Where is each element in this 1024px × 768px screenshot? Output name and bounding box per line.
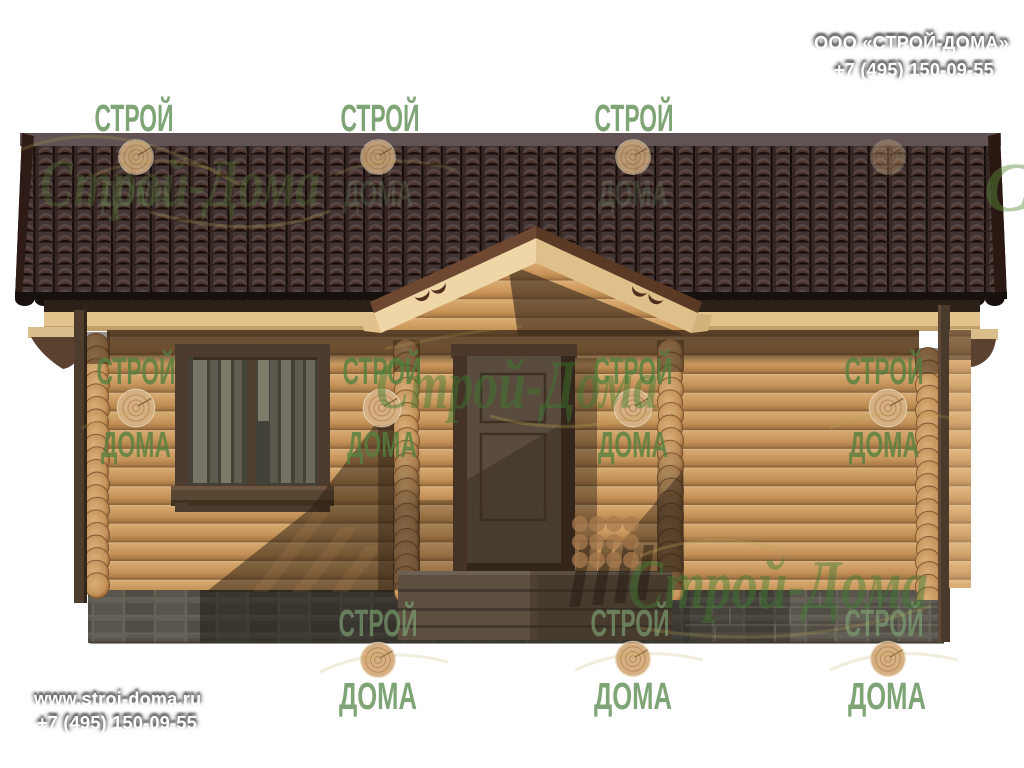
svg-text:ДОМА: ДОМА	[343, 173, 413, 214]
svg-text:СТРОЙ: СТРОЙ	[341, 95, 420, 140]
svg-text:ДОМА: ДОМА	[339, 676, 417, 718]
svg-text:СТРОЙ: СТРОЙ	[339, 600, 418, 645]
svg-text:ДОМА: ДОМА	[594, 676, 672, 718]
svg-text:ДОМА: ДОМА	[849, 424, 919, 465]
svg-text:Строй-Дома: Строй-Дома	[628, 547, 928, 624]
svg-text:СТРОЙ: СТРОЙ	[95, 95, 174, 140]
svg-text:СТРОЙ: СТРОЙ	[97, 348, 176, 393]
svg-text:Строй-Дома: Строй-Дома	[376, 347, 658, 424]
svg-text:СТРОЙ: СТРОЙ	[595, 95, 674, 140]
svg-text:ДОМА: ДОМА	[848, 676, 926, 718]
svg-text:ДОМА: ДОМА	[598, 424, 668, 465]
svg-text:ДОМА: ДОМА	[598, 173, 668, 214]
svg-text:ДОМА: ДОМА	[101, 424, 171, 465]
svg-text:ДОМА: ДОМА	[347, 424, 417, 465]
svg-text:Стр: Стр	[984, 150, 1024, 227]
svg-text:СТРОЙ: СТРОЙ	[845, 348, 924, 393]
